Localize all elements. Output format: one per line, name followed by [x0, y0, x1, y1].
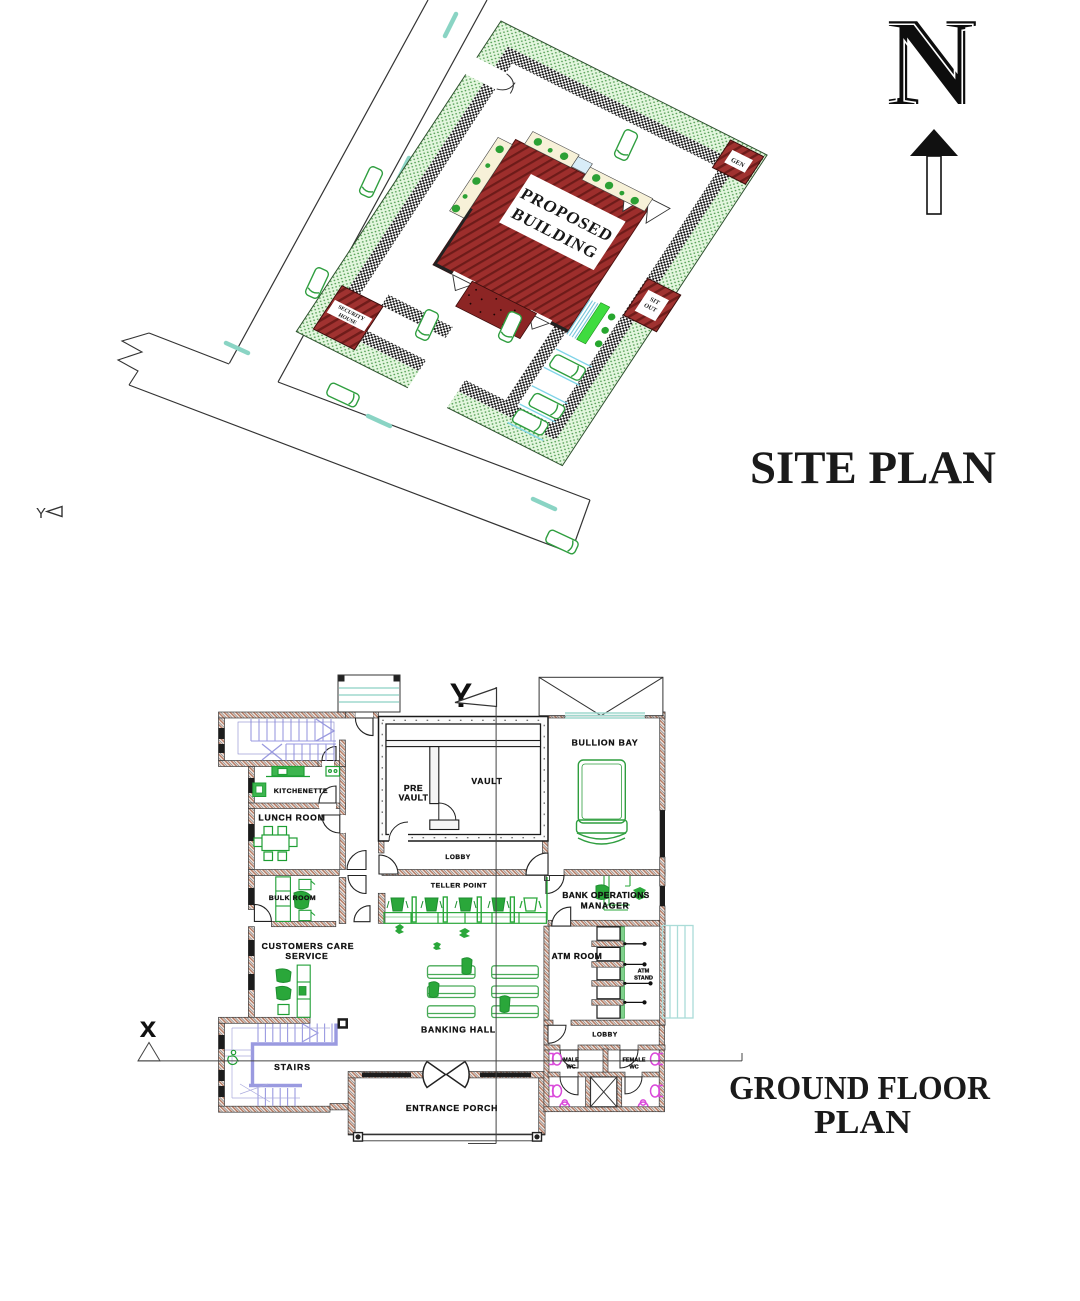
- svg-text:GROUND FLOOR: GROUND FLOOR: [729, 1070, 990, 1107]
- svg-text:ATM: ATM: [638, 969, 650, 975]
- svg-text:MALE: MALE: [563, 1058, 579, 1064]
- svg-text:VAULT: VAULT: [471, 776, 502, 786]
- svg-text:WC: WC: [629, 1065, 638, 1071]
- svg-text:ENTRANCE PORCH: ENTRANCE PORCH: [406, 1103, 498, 1113]
- svg-text:FEMALE: FEMALE: [623, 1058, 646, 1064]
- svg-text:VAULT: VAULT: [399, 793, 429, 803]
- svg-text:ATM ROOM: ATM ROOM: [552, 951, 603, 961]
- svg-text:SITE PLAN: SITE PLAN: [750, 442, 996, 494]
- svg-text:LOBBY: LOBBY: [445, 854, 471, 861]
- svg-text:KITCHENETTE: KITCHENETTE: [274, 788, 328, 795]
- svg-text:WC: WC: [566, 1065, 575, 1071]
- svg-text:LUNCH ROOM: LUNCH ROOM: [258, 813, 325, 823]
- svg-text:BULK ROOM: BULK ROOM: [269, 895, 316, 902]
- svg-text:TELLER POINT: TELLER POINT: [431, 883, 488, 890]
- svg-text:STAND: STAND: [634, 976, 653, 982]
- svg-text:Y: Y: [450, 677, 473, 715]
- svg-text:MANAGER: MANAGER: [581, 901, 630, 911]
- svg-text:PRE: PRE: [404, 783, 423, 793]
- svg-text:SERVICE: SERVICE: [285, 951, 328, 961]
- svg-text:N: N: [884, 0, 975, 135]
- svg-text:Y: Y: [36, 505, 46, 522]
- svg-text:CUSTOMERS CARE: CUSTOMERS CARE: [262, 941, 355, 951]
- svg-text:BANK OPERATIONS: BANK OPERATIONS: [562, 890, 649, 900]
- svg-text:BULLION BAY: BULLION BAY: [572, 738, 639, 748]
- svg-text:STAIRS: STAIRS: [274, 1062, 311, 1072]
- svg-text:BANKING HALL: BANKING HALL: [421, 1025, 496, 1035]
- svg-text:LOBBY: LOBBY: [592, 1032, 618, 1039]
- svg-text:x: x: [140, 1011, 157, 1044]
- svg-text:PLAN: PLAN: [814, 1104, 911, 1141]
